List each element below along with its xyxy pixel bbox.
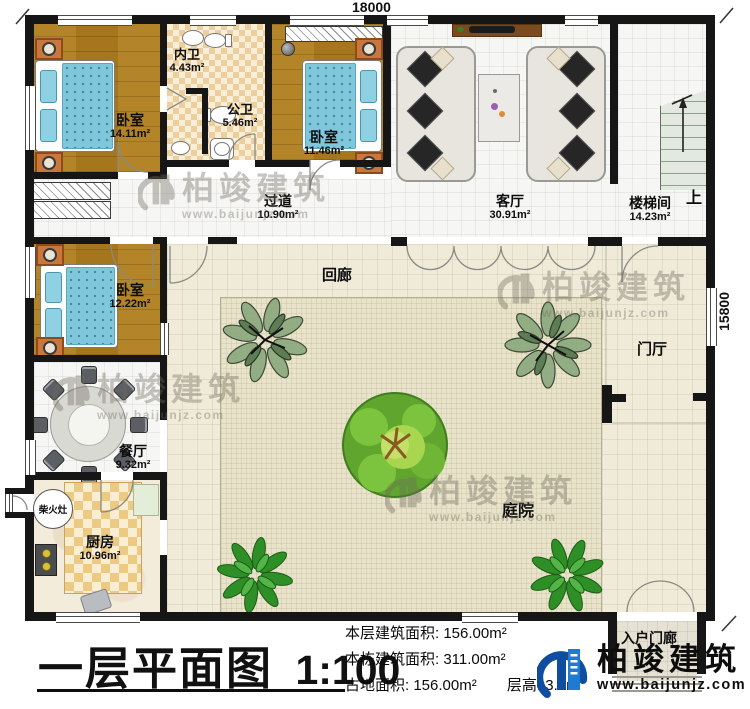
- lamp-icon: [43, 341, 57, 355]
- nightstand: [36, 244, 64, 266]
- stove-niche-floor: [11, 494, 34, 512]
- wall-interior: [148, 172, 167, 179]
- wall-interior: [33, 355, 160, 362]
- room-label-courtyard: 庭院: [502, 497, 534, 521]
- room-label-ensuite-bath: 内卫 4.43m²: [164, 48, 210, 74]
- pillow: [40, 109, 57, 142]
- tv-icon: [469, 26, 515, 33]
- wall-interior: [160, 472, 167, 520]
- company-logo: 柏竣建筑 www.baijunjz.com: [537, 644, 746, 702]
- pillow: [360, 109, 377, 142]
- wall-interior: [208, 237, 237, 244]
- nightstand: [35, 152, 63, 174]
- window: [58, 15, 132, 26]
- sink-icon: [171, 141, 190, 155]
- room-label-kitchen: 厨房 10.96m²: [62, 535, 138, 562]
- room-label-dining-room: 餐厅 9.32m²: [95, 444, 171, 471]
- sofa: [526, 46, 606, 182]
- wall-interior: [610, 24, 618, 184]
- plan-title: 一层平面图: [38, 632, 273, 697]
- lamp-icon: [362, 42, 376, 56]
- table-center: [68, 404, 110, 446]
- wall-interior: [272, 160, 310, 167]
- stair-up-label: 上: [686, 184, 702, 208]
- wall-interior: [167, 160, 229, 167]
- gas-stove-icon: [35, 544, 57, 576]
- wall-interior: [186, 88, 208, 94]
- wall-foyer-stub: [693, 393, 706, 401]
- room-label-living-room: 客厅 30.91m²: [472, 194, 548, 221]
- wall-interior: [265, 24, 272, 160]
- wall-interior: [255, 160, 272, 167]
- room-label-bedroom-a: 卧室 14.11m²: [92, 113, 168, 140]
- sofa: [396, 46, 476, 182]
- wall-interior: [202, 88, 208, 154]
- wall-interior: [658, 237, 715, 246]
- chair: [130, 417, 148, 433]
- wall-interior: [33, 237, 110, 244]
- burner-icon: [42, 562, 51, 571]
- stool: [281, 42, 295, 56]
- wall-interior: [160, 355, 167, 420]
- wall-interior: [588, 237, 622, 246]
- window: [387, 15, 428, 26]
- title-underline: [37, 689, 345, 692]
- floor-plan-canvas: 18000 15800 卧室 14.11m² 内卫 4.43m² 公卫 5.46…: [0, 0, 750, 709]
- flower-decor-icon: [493, 89, 497, 93]
- pillow: [360, 70, 377, 103]
- wall-exterior-left: [25, 512, 34, 621]
- sofa-cushion: [407, 93, 444, 130]
- lamp-icon: [42, 156, 56, 170]
- lamp-icon: [42, 42, 56, 56]
- hallway-cabinet: [33, 201, 111, 219]
- room-label-entry-porch: 入户门廊: [621, 628, 677, 648]
- dimension-top: 18000: [352, 0, 391, 15]
- window: [25, 440, 36, 475]
- staircase: [660, 90, 707, 190]
- lamp-icon: [43, 248, 57, 262]
- wall-interior: [391, 237, 407, 246]
- wall-interior: [383, 24, 391, 167]
- company-name: 柏竣建筑: [597, 644, 746, 677]
- pillow: [45, 272, 62, 303]
- sofa-cushion: [559, 93, 596, 130]
- window: [160, 323, 169, 355]
- room-label-stair-hall: 楼梯间 14.23m²: [612, 196, 688, 223]
- window: [25, 86, 36, 150]
- window: [290, 15, 364, 26]
- sink-icon: [182, 30, 204, 46]
- wall-interior: [33, 172, 118, 179]
- pillow: [40, 70, 57, 103]
- wall-foyer-t: [612, 394, 626, 402]
- window: [565, 15, 598, 26]
- room-label-foyer: 门厅: [637, 338, 667, 359]
- coffee-table: [478, 74, 520, 142]
- window: [5, 494, 13, 512]
- company-logo-icon: [537, 644, 589, 702]
- burner-icon: [42, 549, 51, 558]
- window: [190, 15, 236, 26]
- wall-foyer-t: [602, 385, 612, 423]
- room-label-corridor: 过道 10.90m²: [240, 194, 316, 221]
- firewood-stove-label: 柴火灶: [34, 502, 72, 516]
- dimension-right: 15800: [716, 292, 732, 331]
- wash-basin: [210, 138, 234, 160]
- room-label-cloister: 回廊: [322, 264, 352, 285]
- basin-bowl: [214, 142, 230, 156]
- window: [56, 612, 140, 623]
- tv-cabinet: [452, 24, 542, 37]
- flower-decor-icon: [491, 103, 498, 110]
- window: [25, 247, 36, 298]
- nightstand: [35, 38, 63, 60]
- pillow: [45, 308, 62, 339]
- room-label-bedroom-c: 卧室 12.22m²: [92, 283, 168, 310]
- toilet-tank: [225, 34, 232, 47]
- company-website: www.baijunjz.com: [597, 677, 746, 693]
- wall-interior: [25, 472, 101, 480]
- wall-interior: [160, 555, 167, 612]
- flower-decor-icon: [499, 111, 505, 117]
- nightstand: [355, 38, 383, 60]
- toilet-icon: [204, 33, 226, 48]
- fridge: [133, 484, 159, 516]
- chair: [81, 366, 97, 384]
- plant-decor-icon: [457, 27, 464, 32]
- hallway-cabinet: [33, 182, 111, 200]
- room-label-bedroom-b: 卧室 11.46m²: [286, 130, 362, 157]
- courtyard-floor: [220, 297, 602, 613]
- room-label-shared-bath: 公卫 5.46m²: [217, 103, 263, 129]
